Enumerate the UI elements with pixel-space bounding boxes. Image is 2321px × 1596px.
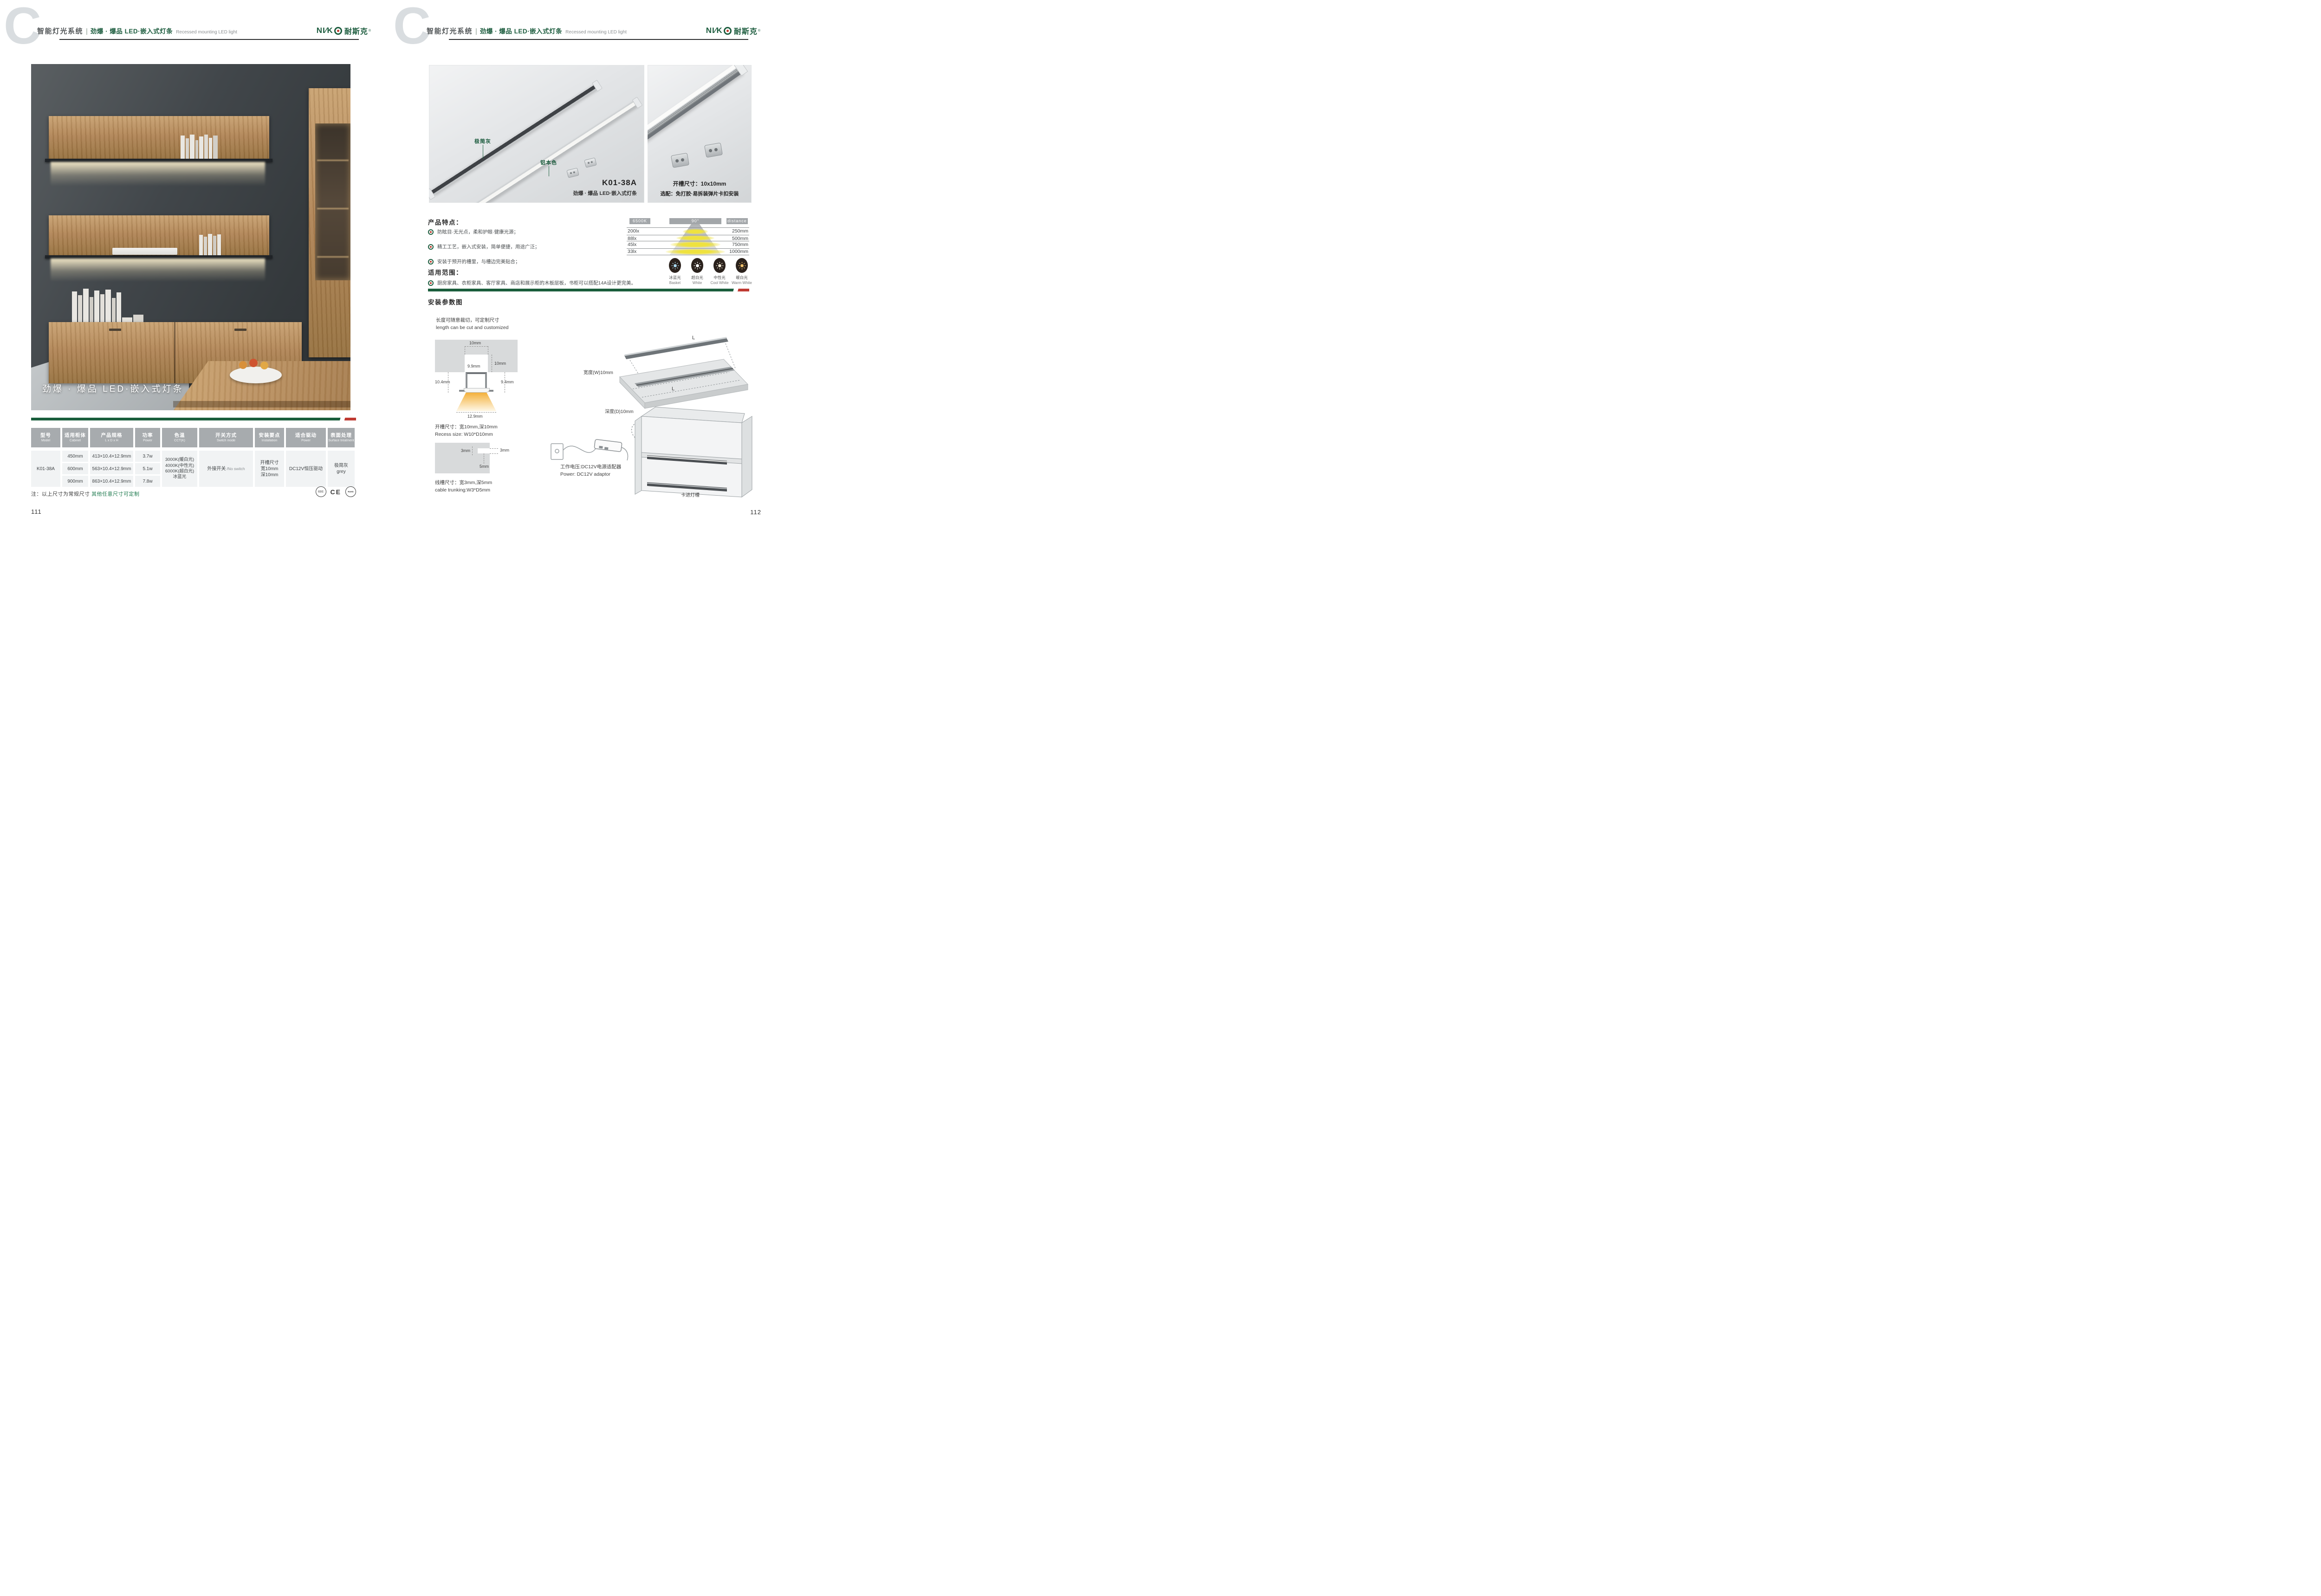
chart-header-cct: 6500K (629, 218, 650, 224)
dim-bottom-width: 12.9mm (467, 414, 483, 419)
spec-table: 型号Model 适用柜体Cabinet 产品规格L x D x H 功率Powe… (31, 428, 356, 487)
photo-overlay-title: 劲爆 · 爆品 LED·嵌入式灯条 (42, 382, 183, 394)
aluminum-profile (648, 65, 742, 146)
dim-guide (488, 346, 488, 355)
lux-value: 88lx (628, 236, 636, 241)
dim-guide (456, 412, 496, 413)
features-list: 防眩目·无光点，柔和护眼·健康光源； 精工工艺，嵌入式安装，简单便捷，用途广泛；… (428, 228, 628, 273)
mounting-clip (584, 157, 596, 168)
list-item: 厨房家具、衣柜家具、客厅家具、商店和展示柜的木板层板，书柜可以搭配14A设计更完… (428, 279, 637, 286)
cell-spec-900: 863×10.4×12.9mm (90, 476, 133, 487)
label-aluminum: 铝本色 (540, 159, 557, 166)
chart-gridline (627, 227, 749, 228)
green-divider-bar (428, 289, 749, 291)
col-cabinet: 适用柜体Cabinet (62, 428, 88, 447)
green-divider-bar (31, 418, 356, 420)
shelf-1-ledge (45, 159, 272, 162)
lux-value: 45lx (628, 242, 636, 247)
ccc-cert-icon: CCC (316, 486, 326, 497)
dim-trunk-top: 3mm (500, 448, 509, 452)
system-title: 智能灯光系统 (37, 26, 83, 36)
white-tray (112, 248, 177, 255)
cell-power-900: 7.8w (135, 476, 160, 487)
page-112: C 智能灯光系统 | 劲爆 · 爆品 LED·嵌入式灯条 Recessed mo… (389, 0, 779, 532)
length-label-top: L (692, 335, 695, 341)
col-cct: 色温CCT(K) (162, 428, 197, 447)
shelf-2-ledge (45, 255, 272, 258)
spec-table-body: K01-38A 450mm 413×10.4×12.9mm 3.7w 3000K… (31, 451, 356, 487)
dim-guide (465, 346, 488, 347)
groove-size-caption: 开槽尺寸：10x10mm (648, 180, 752, 187)
dim-top-width: 10mm (469, 341, 481, 345)
col-model: 型号Model (31, 428, 60, 447)
wall-shelf-1 (49, 116, 269, 159)
dim-guide (465, 346, 465, 355)
rohs-cert-icon: RoHS (345, 486, 356, 497)
logo-cn: 耐斯克 (734, 25, 758, 36)
cross-section-diagram: 10mm 10mm 9.9mm 10.4mm 9.4mm 12.9mm (435, 335, 519, 419)
label-grey: 极简灰 (474, 137, 491, 145)
trunking-size-text: 线槽尺寸：宽3mm,深5mm cable trunking:W3*D5mm (435, 479, 492, 494)
groove-notch (465, 355, 488, 372)
sun-icon (669, 258, 681, 273)
dim-guide (490, 453, 498, 454)
chart-gridline (627, 255, 749, 255)
drawer-handle (109, 329, 121, 331)
certifications: CCC CE RoHS (316, 486, 356, 497)
dim-trunk-bottom: 5mm (480, 464, 489, 469)
swatch-white: 超白光 White (687, 258, 708, 285)
dim-guide (492, 355, 492, 372)
logo-o-icon (724, 27, 732, 35)
fruit (239, 361, 247, 369)
cell-cabinet-600: 600mm (62, 463, 88, 474)
list-item: 安装于预开的槽里，与槽边完美贴合； (428, 258, 628, 265)
section-letter: C (4, 0, 41, 52)
cell-model: K01-38A (31, 451, 60, 487)
page-number-left: 111 (31, 508, 42, 515)
cabinet-diagram (629, 396, 753, 505)
spec-table-header: 型号Model 适用柜体Cabinet 产品规格L x D x H 功率Powe… (31, 428, 356, 447)
light-cone (456, 393, 496, 411)
dim-depth: 10mm (494, 361, 506, 366)
ce-cert-icon: CE (331, 488, 341, 496)
fruit (260, 362, 268, 369)
cell-cct: 3000K(暖白光) 4000K(中性光) 6000K(超白光) 冰蓝光 (162, 451, 197, 487)
product-title-cn: 劲爆 · 爆品 LED·嵌入式灯条 (480, 26, 562, 35)
distance-value: 1000mm (729, 249, 748, 254)
col-spec: 产品规格L x D x H (90, 428, 133, 447)
cct-swatches: 冰蓝光 Basket 超白光 White 中性光 Cool White (664, 258, 752, 285)
dim-inner-width: 9.9mm (467, 364, 480, 368)
light-pool (683, 229, 708, 234)
lux-value: 33lx (628, 249, 636, 254)
power-text: 工作电压:DC12V电源适配器 Power: DC12V adaptor (560, 463, 621, 478)
col-power: 功率Power (135, 428, 160, 447)
swatch-ice-blue: 冰蓝光 Basket (664, 258, 686, 285)
product-photo-profile: 开槽尺寸：10x10mm 选配：免打胶·易拆装弹片卡扣安装 (648, 65, 752, 203)
target-bullet-icon (428, 244, 434, 250)
target-bullet-icon (428, 259, 434, 265)
cabinet-label: 卡进灯槽 (681, 491, 700, 498)
light-pool (676, 235, 714, 241)
chart-header-distance: distance (726, 218, 748, 224)
light-pool (670, 241, 720, 248)
swatch-warm-white: 暖白光 Warm White (731, 258, 752, 285)
cut-note: 长度可随意裁切，可定制尺寸 length can be cut and cust… (436, 317, 508, 332)
registered-mark: ® (369, 29, 371, 32)
page-111: C 智能灯光系统 | 劲爆 · 爆品 LED·嵌入式灯条 Recessed mo… (0, 0, 389, 532)
registered-mark: ® (758, 29, 760, 32)
header-divider: | (475, 27, 477, 35)
cabinet-shelf-glow (317, 208, 349, 209)
target-bullet-icon (428, 229, 434, 235)
col-driver: 适合驱动Power (286, 428, 326, 447)
distance-value: 500mm (732, 236, 748, 241)
plate (230, 367, 282, 383)
distance-value: 250mm (732, 228, 748, 234)
cell-power-450: 3.7w (135, 451, 160, 462)
lux-value: 200lx (628, 228, 639, 234)
cell-driver: DC12V恒压驱动 (286, 451, 326, 487)
sun-icon (691, 258, 703, 273)
dim-right-height: 9.4mm (501, 380, 514, 384)
logo-o-icon (334, 27, 342, 35)
board-section (435, 443, 490, 473)
list-item: 防眩目·无光点，柔和护眼·健康光源； (428, 228, 628, 235)
mounting-clip (704, 142, 723, 158)
lifestyle-photo: 劲爆 · 爆品 LED·嵌入式灯条 (31, 64, 350, 410)
width-label: 宽度(W)10mm (583, 368, 613, 375)
col-switch: 开关方式Switch mode (199, 428, 253, 447)
books-row (199, 233, 221, 255)
sun-icon (736, 258, 748, 273)
photo-caption: 开槽尺寸：10x10mm 选配：免打胶·易拆装弹片卡扣安装 (648, 180, 752, 197)
col-install: 安装要点Installation (255, 428, 284, 447)
model-caption: 劲爆 · 爆品 LED·嵌入式灯条 (573, 189, 637, 197)
section-letter: C (393, 0, 431, 52)
profile-diffuser (464, 388, 490, 393)
photo-caption: K01-38A 劲爆 · 爆品 LED·嵌入式灯条 (573, 178, 637, 197)
sideboard-seam (174, 322, 175, 383)
tall-cabinet-interior (315, 123, 350, 280)
option-caption: 选配：免打胶·易拆装弹片卡扣安装 (648, 190, 752, 197)
product-title-en: Recessed mounting LED light (176, 30, 237, 35)
length-label-groove: L (672, 386, 674, 392)
cell-cabinet-900: 900mm (62, 476, 88, 487)
catalog-spread: C 智能灯光系统 | 劲爆 · 爆品 LED·嵌入式灯条 Recessed mo… (0, 0, 779, 532)
dim-trunk-left: 3mm (461, 448, 470, 453)
recess-size-text: 开槽尺寸：宽10mm,深10mm Recess size: W10*D10mm (435, 423, 498, 439)
mounting-clip (566, 168, 579, 178)
drawer-handle (234, 329, 246, 331)
distance-value: 750mm (732, 242, 748, 247)
mounting-clip (671, 153, 689, 168)
model-code: K01-38A (573, 178, 637, 187)
fruit (249, 359, 258, 367)
cabinet-shelf-glow (317, 256, 349, 258)
target-bullet-icon (428, 280, 434, 286)
product-title-cn: 劲爆 · 爆品 LED·嵌入式灯条 (91, 26, 173, 35)
light-pool (666, 249, 725, 255)
install-heading: 安装参数图 (428, 297, 463, 306)
header-rule (449, 39, 748, 40)
list-item: 精工工艺，嵌入式安装，简单便捷，用途广泛； (428, 243, 628, 250)
logo-latin: NI∕K (706, 26, 723, 35)
scope-heading: 适用范围： (428, 267, 463, 277)
sun-icon (713, 258, 726, 273)
swatch-cool-white: 中性光 Cool White (709, 258, 730, 285)
header-rule (59, 39, 359, 40)
dim-guide (484, 453, 484, 464)
chart-header-angle: 90° (669, 218, 721, 224)
dim-left-height: 10.4mm (435, 380, 450, 384)
coffee-table-edge (173, 401, 350, 407)
cell-power-600: 5.1w (135, 463, 160, 474)
page-header: 智能灯光系统 | 劲爆 · 爆品 LED·嵌入式灯条 Recessed moun… (37, 26, 237, 36)
brand-logo: NI∕K 耐斯克 ® (706, 25, 760, 36)
logo-cn: 耐斯克 (344, 25, 368, 36)
light-distribution-chart: 6500K 90° distance 200lx 88lx 45lx 33lx … (627, 218, 749, 257)
cell-cabinet-450: 450mm (62, 451, 88, 462)
features-heading: 产品特点： (428, 217, 463, 226)
cell-surface: 极简灰 grey (328, 451, 355, 487)
cable-trunking-diagram: 3mm 3mm 5mm (435, 440, 516, 476)
cell-spec-600: 563×10.4×12.9mm (90, 463, 133, 474)
books-row (72, 287, 143, 322)
page-number-right: 112 (750, 509, 761, 516)
col-surface: 表面处理Surface treatment (328, 428, 355, 447)
logo-latin: NI∕K (317, 26, 333, 35)
cell-install: 开槽尺寸 宽10mm 深10mm (255, 451, 284, 487)
trunk-notch (478, 448, 490, 453)
shelf-2-led-glow (51, 258, 265, 282)
dim-guide (490, 448, 498, 449)
header-divider: | (86, 27, 88, 35)
system-title: 智能灯光系统 (427, 26, 473, 36)
cell-switch: 外接开关 /No switch (199, 451, 253, 487)
product-title-en: Recessed mounting LED light (565, 30, 627, 35)
size-note: 注：以上尺寸为常规尺寸 其他任意尺寸可定制 (31, 490, 140, 498)
cabinet-shelf-glow (317, 160, 349, 161)
product-photo-strips: 极简灰 铝本色 K01-38A 劲爆 · 爆品 LED·嵌入式灯条 (429, 65, 644, 203)
page-header: 智能灯光系统 | 劲爆 · 爆品 LED·嵌入式灯条 Recessed moun… (427, 26, 627, 36)
shelf-1-led-glow (51, 162, 265, 186)
note-highlight: 其他任意尺寸可定制 (91, 491, 140, 497)
brand-logo: NI∕K 耐斯克 ® (317, 25, 371, 36)
books-row (181, 134, 218, 159)
dim-guide (472, 446, 473, 455)
cell-spec-450: 413×10.4×12.9mm (90, 451, 133, 462)
